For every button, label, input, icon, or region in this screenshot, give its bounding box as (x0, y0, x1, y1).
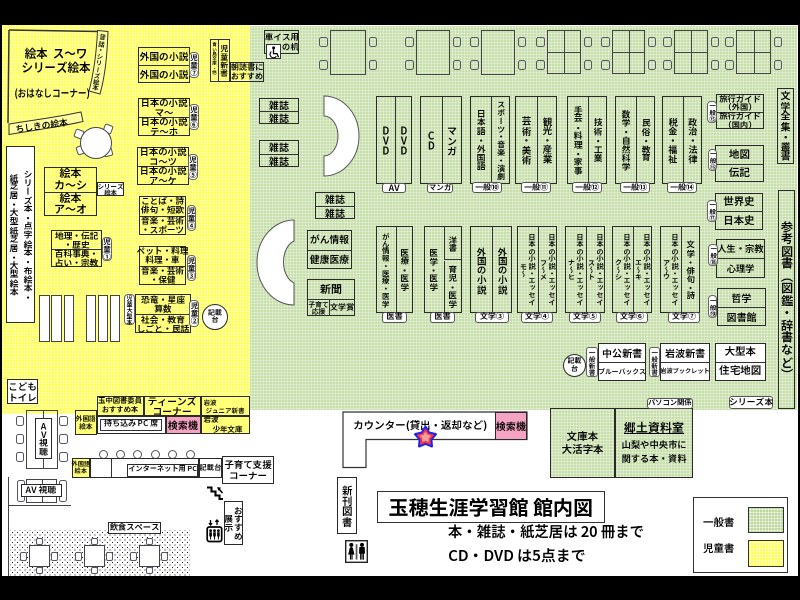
svg-text:ちしきの絵本: ちしきの絵本 (15, 115, 69, 135)
